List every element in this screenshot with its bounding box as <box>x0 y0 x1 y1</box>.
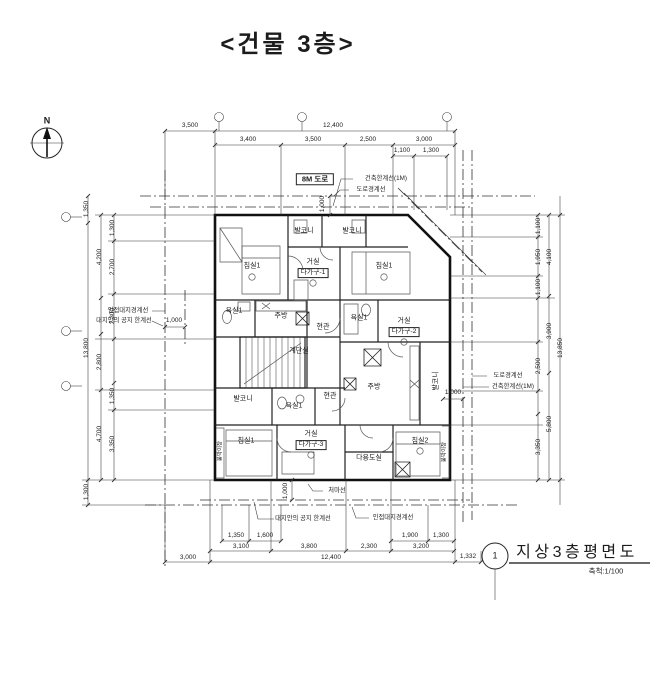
room-bath1-unit3: 욕실1 <box>286 403 303 410</box>
room-living2: 거실 <box>398 318 411 325</box>
room-utility: 다용도실 <box>356 455 382 462</box>
dim-bottom-12400: 12,400 <box>321 555 341 562</box>
dim-bottom-3200: 3,200 <box>413 544 429 551</box>
site-boundary-lines <box>140 150 535 567</box>
unit-label-1: 다가구-1 <box>298 268 329 278</box>
room-living1: 거실 <box>307 259 320 266</box>
room-kitchen-unit2: 주방 <box>368 384 381 391</box>
dim-right-1000: 1,000 <box>445 390 461 397</box>
stairs <box>240 337 305 388</box>
label-closet-right: 붙박이장 <box>442 442 448 462</box>
dimension-lines-right <box>441 196 565 505</box>
dim-left-1000: 1,000 <box>166 318 182 325</box>
room-balcony-top2: 발코니 <box>342 228 361 235</box>
dim-bottom-1300: 1,300 <box>433 533 449 540</box>
drawing-scale: 축척:1/100 <box>589 567 624 575</box>
dim-bottom-3000: 3,000 <box>180 555 196 562</box>
room-bath1-unit1: 욕실1 <box>226 308 243 315</box>
dim-left-4200: 4,200 <box>97 249 104 265</box>
dim-bottom-1332: 1,332 <box>460 554 476 561</box>
dim-bottom-1600: 1,600 <box>257 533 273 540</box>
label-closet-left: 붙박이장 <box>218 441 224 461</box>
dim-right-1100b: 1,100 <box>536 279 543 295</box>
dim-left-13800: 13,800 <box>84 338 91 358</box>
annotation-road-boundary-right: 도로경계선 <box>494 373 523 379</box>
dim-right-13850: 13,850 <box>558 338 565 358</box>
room-bath1-unit2: 욕실1 <box>351 315 368 322</box>
room-balcony-right: 발코니 <box>433 371 440 390</box>
unit-label-3: 다가구-3 <box>296 440 327 450</box>
room-bedroom1-topleft: 침실1 <box>244 263 261 270</box>
dim-bottom-3100: 3,100 <box>233 544 249 551</box>
dim-right-4100: 4,100 <box>547 249 554 265</box>
dim-right-3900: 3,900 <box>547 323 554 339</box>
drawing-title: 지상3층평면도 <box>516 545 638 561</box>
dim-top-3000: 3,000 <box>416 137 432 144</box>
road-label: 8M 도로 <box>296 173 334 185</box>
dim-bottom-1350: 1,350 <box>228 533 244 540</box>
room-entry-unit1: 현관 <box>317 324 330 331</box>
dim-top-12400: 12,400 <box>323 123 343 130</box>
annotation-road-boundary-top: 도로경계선 <box>357 187 386 193</box>
dim-bottom-1900: 1,900 <box>402 533 418 540</box>
dim-left-1350b: 1,350 <box>110 388 117 404</box>
dim-top-1000: 1,000 <box>320 196 327 212</box>
dim-left-2800: 2,800 <box>97 354 104 370</box>
dim-right-2500: 2,500 <box>536 358 543 374</box>
annotation-adjacent-boundary-left: 인접대지경계선 <box>108 308 149 314</box>
annotation-eaves-line: 처마선 <box>328 488 345 494</box>
room-bedroom2-bottomright: 침실2 <box>412 438 429 445</box>
annotation-leaders-top <box>333 179 353 206</box>
dim-bottom-2300: 2,300 <box>361 544 377 551</box>
room-balcony-left: 발코니 <box>233 396 252 403</box>
dim-top-1300: 1,300 <box>423 148 439 155</box>
drawing-number: 1 <box>492 552 497 561</box>
room-entry-unit3: 현관 <box>324 393 337 400</box>
dim-top-3500b: 3,500 <box>305 137 321 144</box>
dim-right-3350: 3,350 <box>536 439 543 455</box>
dim-bottom-3800: 3,800 <box>301 544 317 551</box>
dim-top-3500: 3,500 <box>182 123 198 130</box>
dim-left-2700: 2,700 <box>110 259 117 275</box>
dim-left-3350: 3,350 <box>110 436 117 452</box>
annotation-adjacent-boundary-bottom: 인접대지경계선 <box>373 515 414 521</box>
annotation-open-space-left: 대지안의 공지 한계선 <box>96 318 152 324</box>
annotation-open-space-bottom: 대지안의 공지 한계선 <box>275 516 331 522</box>
unit-label-2: 다가구-2 <box>389 327 420 337</box>
dim-left-1350a: 1,350 <box>84 201 91 217</box>
dim-top-3400: 3,400 <box>240 137 256 144</box>
dim-left-4700: 4,700 <box>97 426 104 442</box>
room-living3: 거실 <box>305 431 318 438</box>
dim-bottom-1000: 1,000 <box>283 483 290 499</box>
dim-right-1950: 1,950 <box>536 249 543 265</box>
room-balcony-top1: 발코니 <box>294 228 313 235</box>
dim-left-1300a: 1,300 <box>84 484 91 500</box>
annotation-building-limit-right: 건축한계선(1M) <box>492 384 534 390</box>
room-bedroom1-bottomleft: 침실1 <box>238 438 255 445</box>
annotation-building-limit-top: 건축한계선(1M) <box>365 176 407 182</box>
room-kitchen-unit1: 주방 <box>275 313 288 320</box>
dim-left-1300b: 1,300 <box>110 220 117 236</box>
dim-right-1100a: 1,100 <box>536 218 543 234</box>
dim-right-5800: 5,800 <box>547 416 554 432</box>
north-arrow-icon <box>30 127 64 158</box>
dimension-lines-left <box>82 194 215 507</box>
floor-plan-page: <건물 3층> N 8M 도로 건축한계선(1M) 도로경계선 3,500 12… <box>0 0 658 700</box>
room-stair: 계단실 <box>289 348 308 355</box>
page-title: <건물 3층> <box>220 33 355 57</box>
room-bedroom1-topright: 침실1 <box>376 263 393 270</box>
dim-top-1100: 1,100 <box>394 148 410 155</box>
dim-top-2500: 2,500 <box>360 137 376 144</box>
north-label: N <box>44 117 51 126</box>
